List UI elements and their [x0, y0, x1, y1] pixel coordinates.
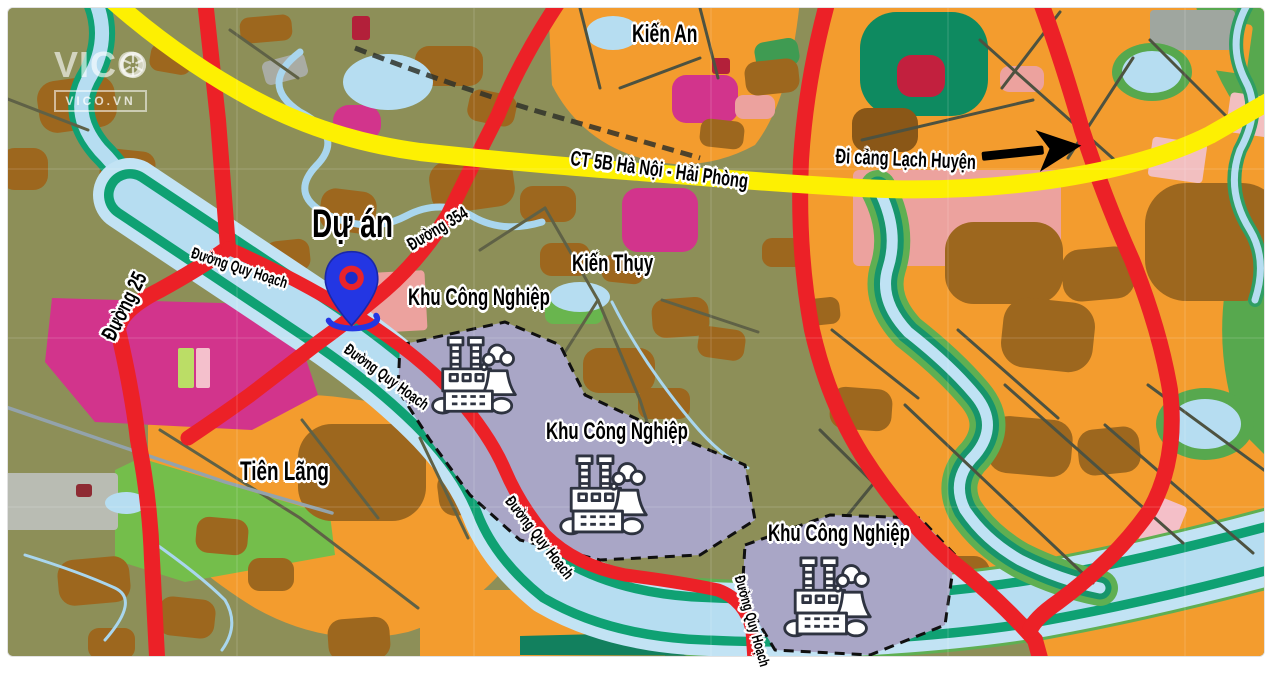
map-artwork — [8, 8, 1264, 656]
map-canvas — [8, 8, 1264, 656]
label-khu-cong-nghiep-3: Khu Công Nghiệp — [768, 522, 910, 546]
label-khu-cong-nghiep-1: Khu Công Nghiệp — [408, 286, 550, 310]
label-kien-an: Kiến An — [632, 22, 697, 47]
watermark-domain: VICO.VN — [54, 90, 147, 112]
vico-aperture-icon — [119, 51, 147, 79]
watermark: VICO VICO.VN — [54, 44, 147, 112]
label-du-an: Dự án — [312, 204, 393, 244]
label-khu-cong-nghiep-2: Khu Công Nghiệp — [546, 420, 688, 444]
label-tien-lang: Tiên Lãng — [240, 458, 329, 485]
label-kien-thuy: Kiến Thụy — [572, 252, 653, 276]
planning-map-screenshot: VICO VICO.VN Kiến An Kiến Thụy Tiên Lãng… — [0, 0, 1280, 676]
